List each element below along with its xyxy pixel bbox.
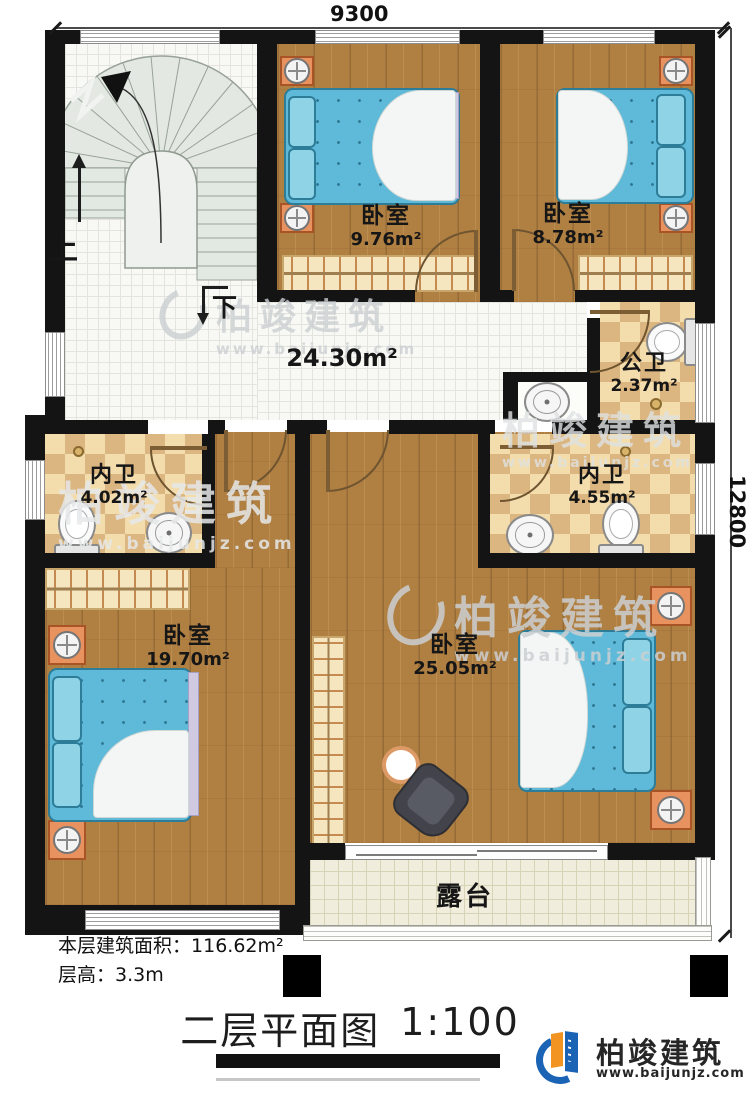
- window: [85, 910, 280, 930]
- stairs-up-label: 上: [48, 224, 78, 268]
- room-label-public-bath: 公卫 2.37m²: [589, 350, 699, 398]
- wall-bedroom-divider-top: [480, 30, 500, 302]
- wall-corridor-c: [287, 420, 327, 434]
- room-label-bedroom-bottom-left: 卧室 19.70m²: [118, 623, 258, 671]
- room-name: 卧室: [430, 633, 480, 659]
- pillow: [52, 676, 82, 742]
- lamp-icon: [663, 58, 689, 84]
- floor-area-row: 本层建筑面积：116.62m²: [58, 932, 284, 961]
- lamp-icon: [657, 592, 685, 620]
- room-area: 4.55m²: [568, 489, 635, 508]
- window: [25, 460, 45, 520]
- window: [695, 463, 715, 535]
- nightstand: [280, 203, 314, 233]
- room-area: 4.02m²: [80, 489, 147, 508]
- wall-corridor-a: [25, 420, 148, 434]
- nightstand: [659, 56, 693, 86]
- window: [543, 30, 655, 44]
- room-name: 卧室: [163, 624, 213, 650]
- room-name: 卧室: [361, 204, 411, 230]
- stairs-down-arrow-line: [202, 286, 205, 314]
- pillow: [288, 96, 316, 148]
- logo-building-orange: [551, 1032, 563, 1068]
- wall-bedroom2-bottom-b: [575, 290, 695, 302]
- wall-corridor-e: [552, 420, 710, 434]
- room-label-bedroom-bottom-right: 卧室 25.05m²: [385, 632, 525, 680]
- lamp-icon: [53, 631, 81, 659]
- room-label-bedroom-top-left: 卧室 9.76m²: [316, 204, 456, 250]
- drawing-title-row: 二层平面图 1:100: [120, 1000, 580, 1055]
- pillow: [622, 638, 652, 706]
- floor-drain-icon: [650, 398, 662, 410]
- floor-plan: 上 下: [0, 0, 750, 1100]
- wall-stair-divider: [257, 30, 277, 302]
- wall-bedroom1-bottom: [277, 290, 415, 302]
- nightstand: [280, 56, 314, 86]
- floor-drain-icon: [620, 446, 631, 457]
- spiral-staircase: [65, 43, 257, 302]
- door-panel: [326, 430, 330, 492]
- terrace-label: 露台: [420, 876, 510, 913]
- sliding-door: [345, 845, 608, 860]
- pillow: [656, 146, 686, 198]
- room-label-bedroom-top-right: 卧室 8.78m²: [498, 202, 638, 248]
- room-name: 公卫: [620, 352, 668, 377]
- wall-bedroom-divider-bottom: [295, 434, 310, 935]
- pillow: [52, 742, 82, 808]
- wall-bedroom2-bottom-a: [500, 290, 514, 302]
- hallway-area-label: 24.30m²: [262, 344, 422, 372]
- window: [45, 332, 65, 397]
- pillow: [656, 94, 686, 146]
- floor-area-value: 116.62m²: [191, 935, 284, 957]
- nightstand: [650, 586, 692, 626]
- drawing-scale: 1:100: [400, 1000, 520, 1055]
- stairs-down-label: 下: [212, 288, 237, 324]
- sink-icon: [146, 512, 192, 554]
- wall-ensuite-right-left: [478, 434, 490, 568]
- stairs-up-arrow-line: [78, 168, 81, 222]
- door-panel: [224, 430, 228, 492]
- wardrobe: [578, 255, 693, 292]
- door-panel: [474, 230, 478, 292]
- floor-height-value: 3.3m: [115, 964, 164, 986]
- floor-height-row: 层高：3.3m: [58, 961, 284, 990]
- nightstand: [48, 625, 86, 665]
- floor-height-label: 层高：: [58, 964, 115, 986]
- pillow: [622, 706, 652, 774]
- room-name: 内卫: [90, 464, 138, 489]
- bed-frame: [188, 672, 199, 816]
- stairs-up-arrow-head: [72, 154, 86, 168]
- wall-bedroom4-bottom-a: [310, 843, 345, 860]
- title-underline-bar: [216, 1054, 500, 1068]
- room-name: 卧室: [543, 202, 593, 228]
- room-area: 19.70m²: [146, 650, 230, 670]
- lamp-icon: [284, 58, 310, 84]
- room-label-ensuite-right: 内卫 4.55m²: [538, 462, 666, 510]
- logo-building-blue: [565, 1031, 578, 1073]
- title-underline-thin: [216, 1078, 480, 1081]
- room-name: 内卫: [578, 464, 626, 489]
- room-area: 9.76m²: [350, 230, 421, 250]
- wardrobe: [312, 636, 345, 845]
- window: [315, 30, 460, 44]
- lamp-icon: [663, 205, 689, 231]
- lamp-icon: [284, 205, 310, 231]
- wall-ensuite-left-bottom: [25, 553, 215, 568]
- floor-stats: 本层建筑面积：116.62m² 层高：3.3m: [58, 932, 284, 991]
- wall-corridor-d: [389, 420, 495, 434]
- room-area: 2.37m²: [610, 377, 677, 396]
- sink-icon: [506, 514, 554, 556]
- dimension-height: 12800: [725, 475, 749, 545]
- column: [690, 955, 728, 997]
- wall-right: [695, 30, 715, 860]
- drawing-title: 二层平面图: [180, 1000, 380, 1055]
- lamp-icon: [53, 826, 81, 854]
- blanket: [372, 90, 456, 201]
- terrace-railing-bottom: [303, 925, 712, 941]
- floor-area-label: 本层建筑面积：: [58, 935, 191, 957]
- window: [80, 30, 220, 44]
- wall-niche-top: [515, 372, 587, 382]
- nightstand: [659, 203, 693, 233]
- wardrobe: [45, 568, 190, 610]
- nightstand: [650, 790, 692, 830]
- terrace-railing-right: [695, 857, 711, 927]
- sink-icon: [524, 382, 570, 422]
- door-panel: [150, 446, 207, 450]
- column: [283, 955, 321, 997]
- room-label-ensuite-left: 内卫 4.02m²: [50, 462, 178, 510]
- room-area: 25.05m²: [413, 659, 497, 679]
- stairs-down-arrow-head: [197, 313, 209, 325]
- wall-corridor-b: [208, 420, 225, 434]
- wall-ensuite-right-bottom: [478, 553, 710, 568]
- floor-drain-icon: [73, 446, 84, 457]
- room-area: 8.78m²: [532, 228, 603, 248]
- door-panel: [590, 310, 650, 314]
- company-logo-icon: [536, 1030, 594, 1088]
- stairs-down-arrow-bar: [202, 286, 228, 289]
- dimension-line-top: [55, 27, 731, 29]
- door-panel: [500, 445, 554, 449]
- pillow: [288, 148, 316, 200]
- nightstand: [48, 820, 86, 860]
- wall-bedroom4-bottom-b: [608, 843, 695, 860]
- company-logo-url: www.baijunjz.com: [596, 1066, 748, 1081]
- dimension-width: 9300: [330, 2, 420, 26]
- lamp-icon: [657, 796, 685, 824]
